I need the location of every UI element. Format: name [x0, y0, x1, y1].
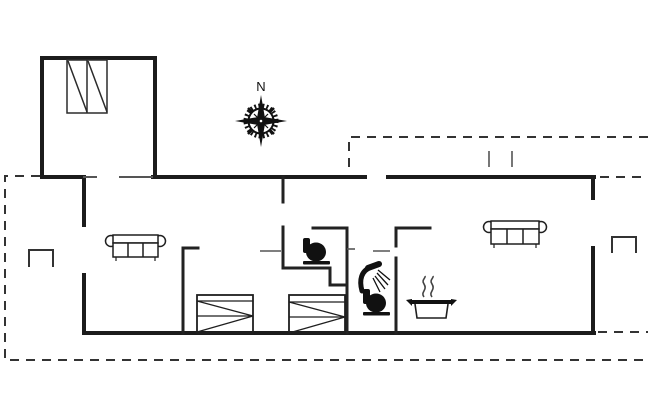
toilet1-base [303, 261, 330, 265]
toilet1-bowl [306, 243, 326, 262]
pot-body [415, 304, 448, 318]
bed-icon-1 [197, 295, 253, 333]
bed2-outline [289, 295, 345, 333]
toilet-icon-1 [303, 238, 330, 265]
sofa-right-seat [491, 229, 539, 244]
sofa-icon-right [484, 221, 547, 248]
terrace-outline-dashed [5, 137, 648, 360]
annex-walls [42, 58, 155, 177]
shower-spray-lines [373, 270, 390, 292]
sofa-left-seat [113, 243, 158, 257]
compass-center-hole [260, 120, 263, 123]
steam-lines [423, 276, 433, 297]
bedroom2-top-wall [283, 268, 347, 285]
toilet2-bowl [366, 294, 386, 313]
step-icon-west [29, 250, 53, 267]
interior-walls [183, 177, 430, 333]
pot-rim [412, 300, 451, 304]
toilet2-base [363, 312, 390, 316]
floor-plan-page: N [0, 0, 650, 420]
door-threshold-lines [260, 151, 512, 251]
toilet-icon-2 [363, 289, 390, 316]
north-label: N [256, 79, 265, 94]
sofa-left-back [113, 235, 158, 243]
cooking-pot-icon [406, 276, 457, 318]
compass-rose-icon: N [235, 79, 287, 147]
sofa-right-back [491, 221, 539, 229]
terrace-gate-marks [489, 151, 512, 167]
pot-handle-right [451, 299, 457, 306]
wardrobe-icon [67, 60, 107, 113]
shower-icon [361, 264, 390, 292]
bedroom1-wall [183, 248, 198, 333]
pot-handle-left [406, 299, 412, 306]
shower-head [368, 264, 379, 268]
floor-plan-drawing: N [0, 0, 650, 420]
bed-icon-2 [289, 295, 345, 333]
step-icon-east [612, 237, 636, 253]
terrace-dashed-top-right [349, 137, 648, 172]
sofa-icon-left [106, 235, 166, 261]
exterior-walls [42, 58, 594, 333]
